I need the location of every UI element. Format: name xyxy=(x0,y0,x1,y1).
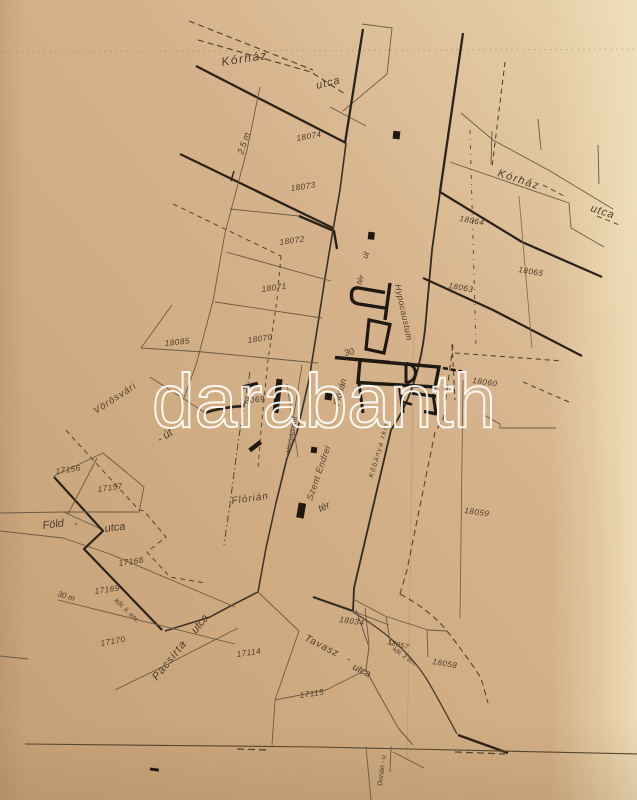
svg-text:utca: utca xyxy=(104,521,126,535)
svg-text:30: 30 xyxy=(343,346,355,358)
svg-text:-: - xyxy=(74,518,78,530)
svg-text:darabanth: darabanth xyxy=(152,359,496,444)
